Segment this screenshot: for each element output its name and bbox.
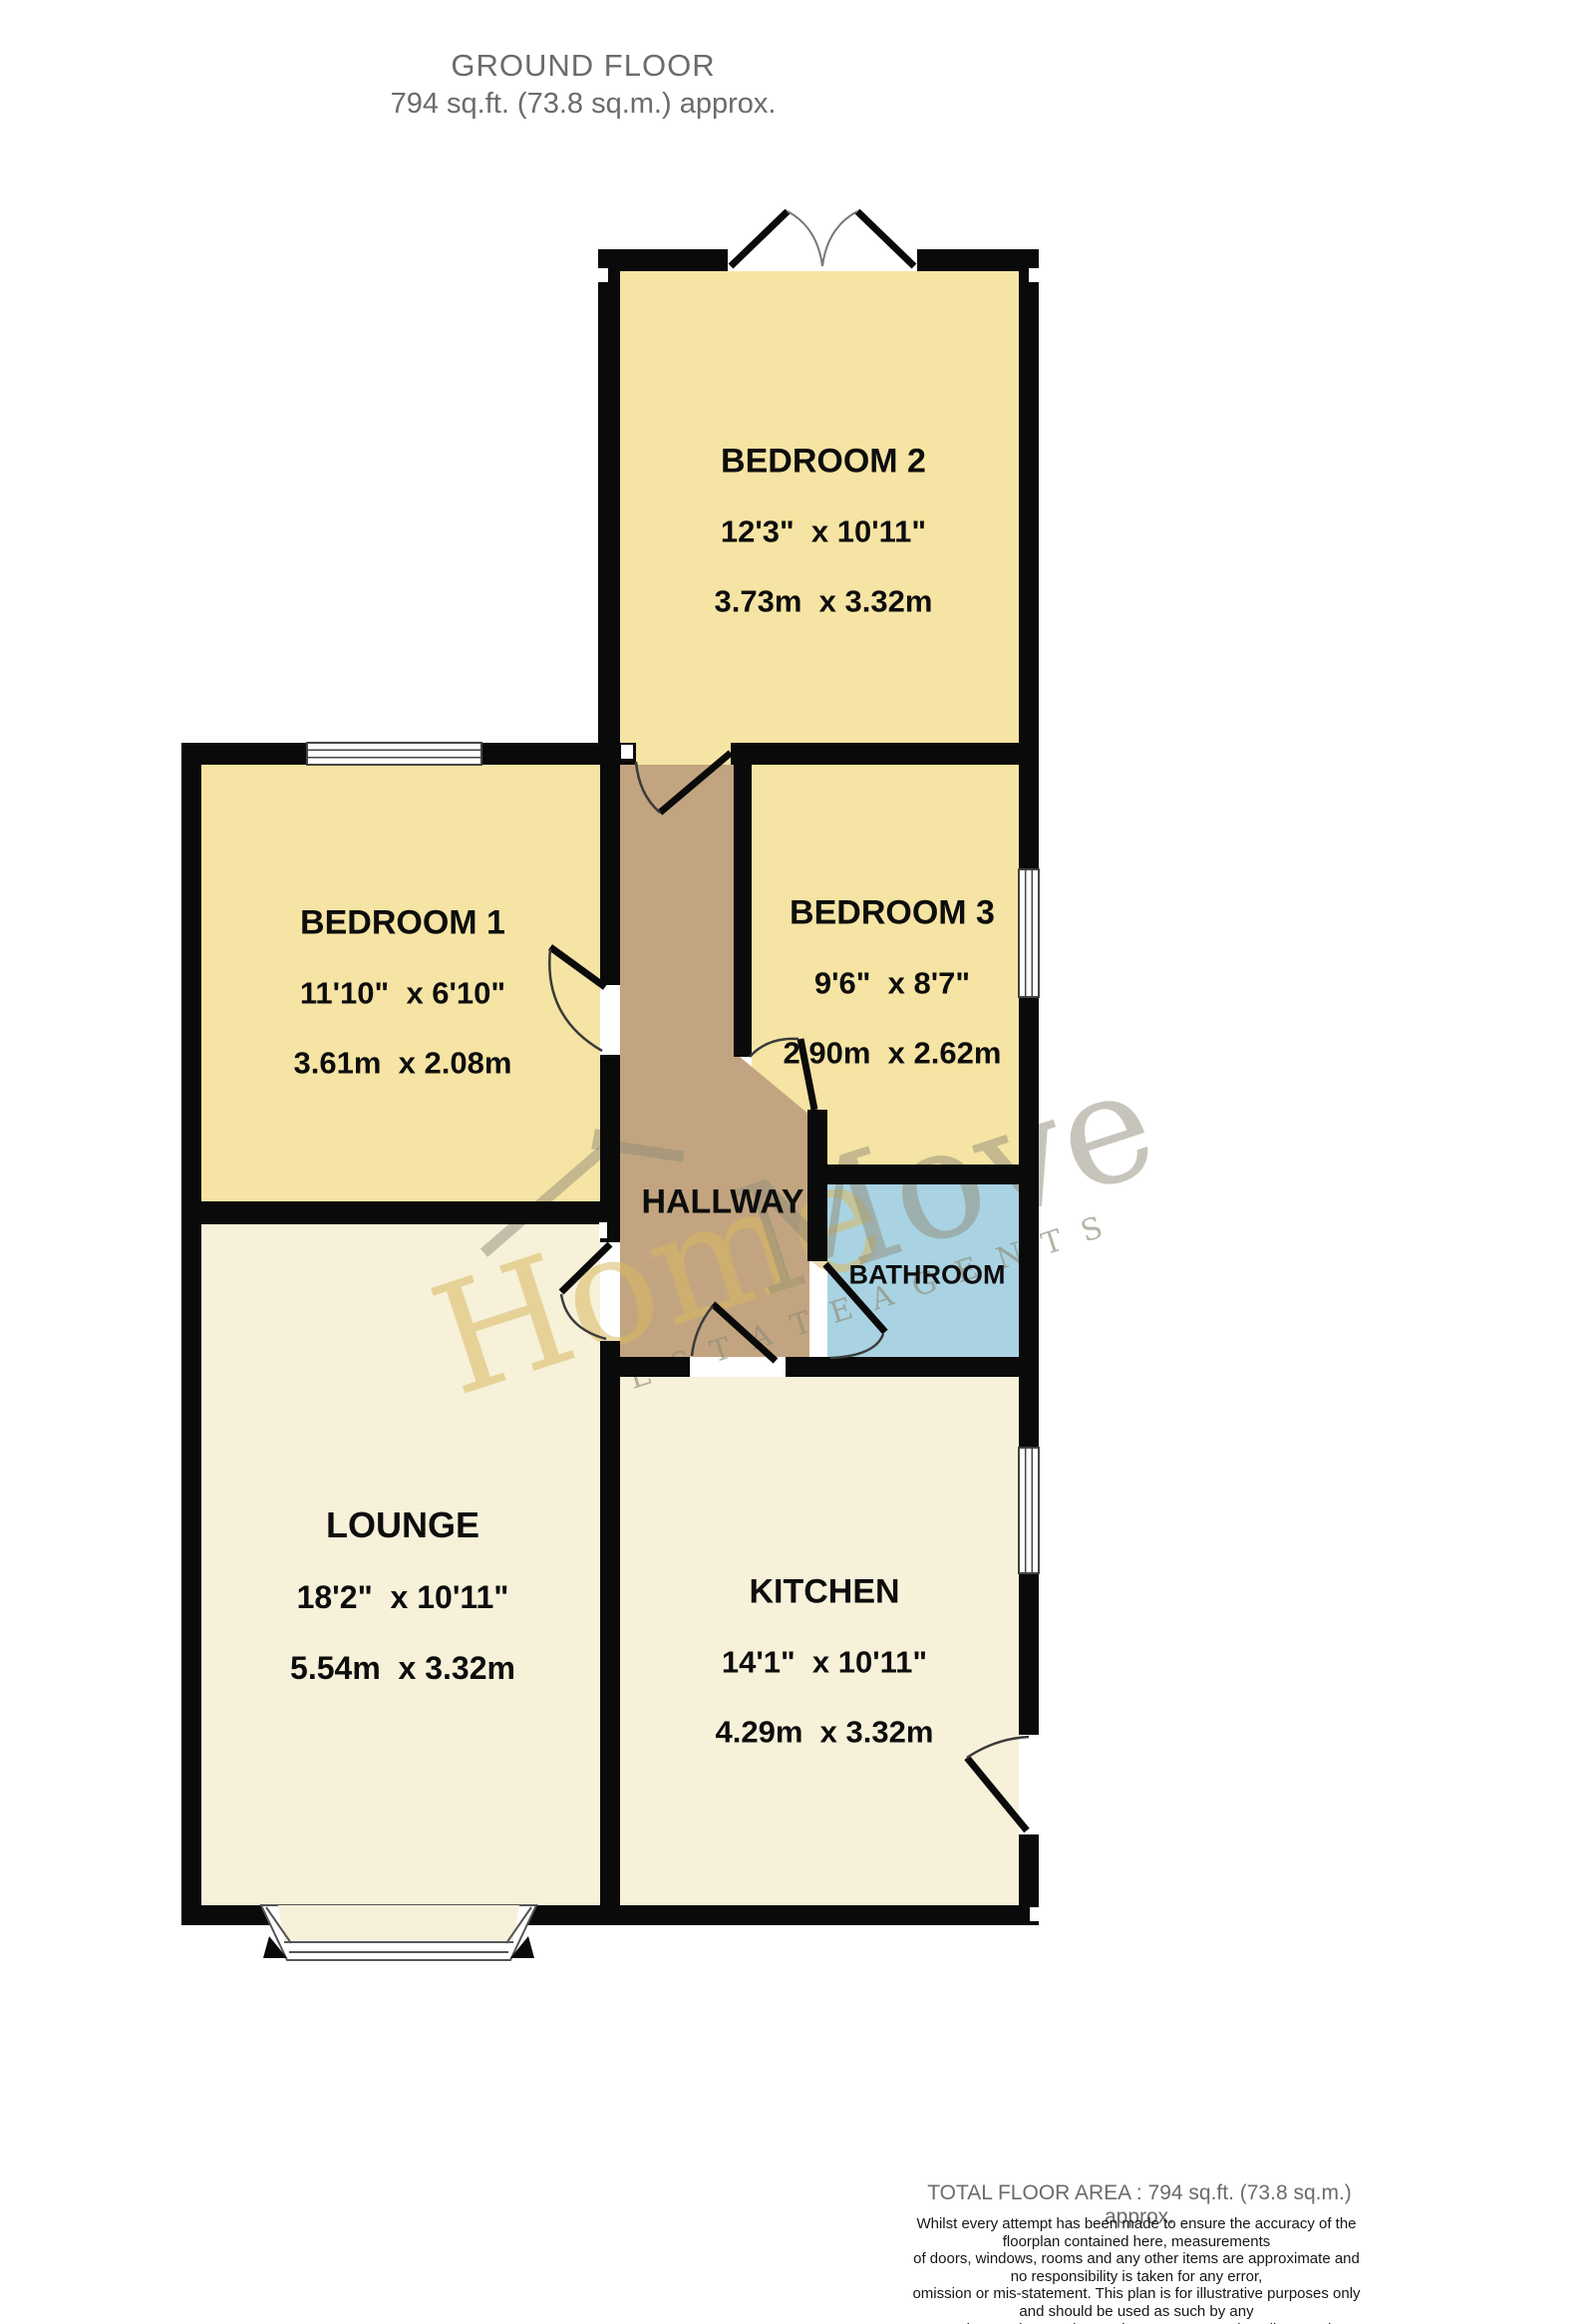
wall-notch <box>621 745 633 759</box>
room-name: LOUNGE <box>290 1506 515 1544</box>
room-dims-imperial: 14'1" x 10'11" <box>716 1646 934 1680</box>
disclaimer-line: prospective purchaser. The services, sys… <box>907 2321 1366 2324</box>
wall <box>481 743 636 765</box>
room-dims-imperial: 12'3" x 10'11" <box>715 515 933 549</box>
label-bedroom3: BEDROOM 3 9'6" x 8'7" 2.90m x 2.62m <box>784 860 1002 1107</box>
wall <box>598 249 620 765</box>
disclaimer-line: omission or mis-statement. This plan is … <box>907 2285 1366 2320</box>
room-name: KITCHEN <box>716 1575 934 1610</box>
window-bedroom1 <box>307 743 481 765</box>
room-dims-metric: 4.29m x 3.32m <box>716 1716 934 1750</box>
room-dims-imperial: 9'6" x 8'7" <box>784 967 1002 1001</box>
room-name: BEDROOM 1 <box>294 906 512 941</box>
label-bathroom: BATHROOM <box>849 1222 1006 1329</box>
wall <box>521 1905 1039 1925</box>
wall <box>731 743 1039 765</box>
wall <box>786 1357 1039 1377</box>
wall <box>598 249 728 271</box>
disclaimer: Whilst every attempt has been made to en… <box>907 2215 1366 2324</box>
wall <box>807 1164 1039 1184</box>
label-kitchen: KITCHEN 14'1" x 10'11" 4.29m x 3.32m <box>716 1539 934 1786</box>
wall <box>600 765 620 985</box>
wall-notch <box>1030 1907 1039 1921</box>
wall <box>181 743 201 1925</box>
wall-notch <box>1029 268 1039 282</box>
wall <box>181 1201 620 1224</box>
label-bedroom2: BEDROOM 2 12'3" x 10'11" 3.73m x 3.32m <box>715 409 933 655</box>
room-dims-metric: 3.73m x 3.32m <box>715 585 933 619</box>
label-bedroom1: BEDROOM 1 11'10" x 6'10" 3.61m x 2.08m <box>294 870 512 1117</box>
window-bedroom3 <box>1019 869 1039 997</box>
disclaimer-line: Whilst every attempt has been made to en… <box>907 2215 1366 2250</box>
room-name: BEDROOM 3 <box>784 896 1002 931</box>
wall <box>1019 249 1039 869</box>
room-dims-imperial: 11'10" x 6'10" <box>294 977 512 1011</box>
wall <box>1019 997 1039 1448</box>
room-dims-metric: 2.90m x 2.62m <box>784 1037 1002 1071</box>
room-dims-metric: 3.61m x 2.08m <box>294 1047 512 1081</box>
room-name: BEDROOM 2 <box>715 445 933 480</box>
label-lounge: LOUNGE 18'2" x 10'11" 5.54m x 3.32m <box>290 1471 515 1722</box>
disclaimer-line: of doors, windows, rooms and any other i… <box>907 2250 1366 2285</box>
room-dims-imperial: 18'2" x 10'11" <box>290 1580 515 1615</box>
bay-window-lounge <box>261 1905 536 1960</box>
room-dims-metric: 5.54m x 3.32m <box>290 1651 515 1686</box>
room-name: BATHROOM <box>849 1258 1006 1293</box>
label-hallway: HALLWAY <box>641 1150 803 1256</box>
window-kitchen <box>1019 1448 1039 1573</box>
floorplan-page: GROUND FLOOR 794 sq.ft. (73.8 sq.m.) app… <box>0 0 1595 2324</box>
wall <box>600 1357 690 1377</box>
wall <box>734 765 752 1057</box>
french-doors-bedroom2 <box>731 211 914 266</box>
wall <box>600 1341 620 1905</box>
wall-notch <box>599 1222 607 1238</box>
room-name: HALLWAY <box>641 1185 803 1220</box>
wall-notch <box>598 268 608 282</box>
wall <box>807 1110 827 1261</box>
wall <box>1019 1573 1039 1735</box>
